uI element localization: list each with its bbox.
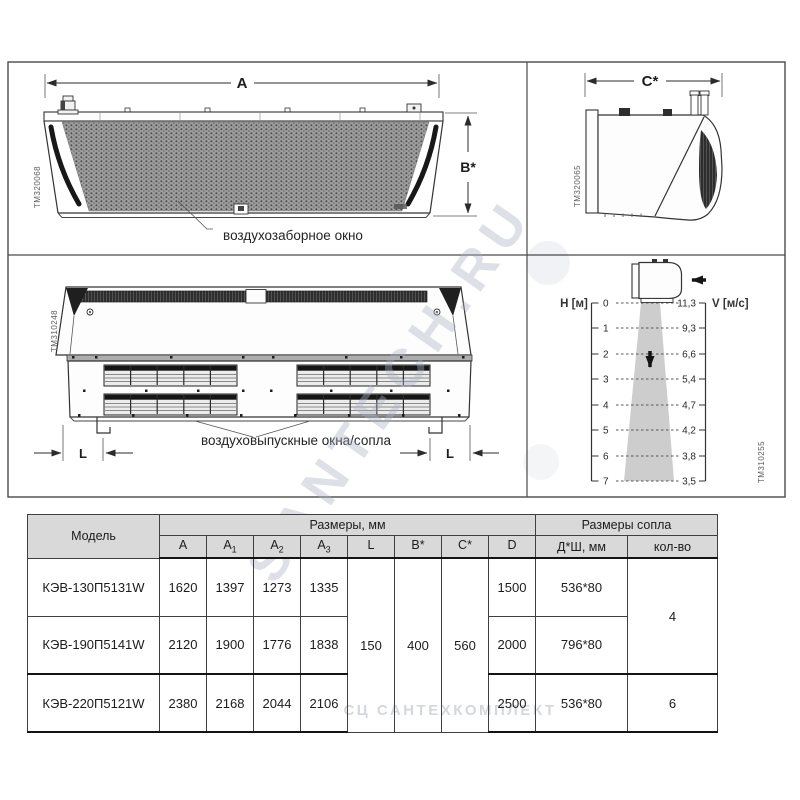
v-tick: 9,3 [682, 324, 696, 335]
dimension-a: A [45, 74, 439, 98]
drawing-code: TM320065 [573, 165, 582, 207]
dimension-l-left: L [34, 425, 133, 461]
intake-mesh [62, 122, 429, 211]
h-tick: 5 [603, 426, 609, 437]
model-cell: КЭВ-130П5131W [28, 558, 160, 616]
dim-a-cell: 2120 [160, 616, 207, 674]
nozzle-size-cell: 796*80 [536, 616, 628, 674]
col-header-nozzle-qty: кол-во [628, 536, 718, 559]
v-tick: 11,3 [677, 299, 696, 310]
model-cell: КЭВ-190П5141W [28, 616, 160, 674]
col-header-c: C* [442, 536, 489, 559]
velocity-axis: V [м/с] 11,3 9,3 6,6 5,4 4,7 4,2 3,8 3,5 [677, 298, 749, 488]
technical-drawing: A [0, 0, 800, 510]
v-tick: 4,7 [682, 401, 696, 412]
intake-callout-label: воздухозаборное окно [223, 228, 363, 243]
dim-l-left-label: L [79, 446, 87, 461]
h-tick: 0 [603, 299, 609, 310]
nozzle-group-header: Размеры сопла [536, 515, 718, 536]
drawing-code: TM310248 [50, 310, 59, 352]
mount-hook [97, 417, 110, 433]
dim-a-cell: 1620 [160, 558, 207, 616]
col-header-a2: A2 [254, 536, 301, 559]
h-tick: 1 [603, 324, 609, 335]
pipe-connection [701, 95, 708, 115]
v-tick: 6,6 [682, 350, 696, 361]
dimension-b: B* [433, 113, 477, 216]
outlet-grille [297, 365, 430, 386]
sensor-fitting [407, 104, 421, 112]
airflow-cone [624, 303, 674, 481]
col-header-a3: A3 [301, 536, 348, 559]
outlet-grille [104, 365, 237, 386]
bottom-view-panel: L L воздуховыпускные окна/сопла TM310248 [34, 287, 499, 461]
unit-pictogram [632, 259, 682, 303]
dim-a2-cell: 1776 [254, 616, 301, 674]
dim-d-cell: 2500 [489, 674, 536, 732]
air-curtain-spec-sheet: A [0, 0, 800, 800]
dim-a2-cell: 1273 [254, 558, 301, 616]
v-tick: 5,4 [682, 375, 696, 386]
dim-a-cell: 2380 [160, 674, 207, 732]
height-axis-label: H [м] [560, 298, 588, 310]
table-row: КЭВ-130П5131W 1620 1397 1273 1335 150 40… [28, 558, 718, 616]
airflow-panel: H [м] 0 1 2 3 4 5 6 7 V [м/с] [560, 259, 766, 488]
dimension-l-right: L [400, 425, 499, 461]
drawing-code: TM310255 [757, 441, 766, 483]
drawing-code: TM320068 [33, 166, 42, 208]
col-header-a: A [160, 536, 207, 559]
outlet-callout-label: воздуховыпускные окна/сопла [201, 433, 392, 448]
pipe-connection [691, 95, 698, 115]
model-cell: КЭВ-220П5121W [28, 674, 160, 732]
h-tick: 2 [603, 350, 609, 361]
dim-a1-cell: 1397 [207, 558, 254, 616]
nozzle-size-cell: 536*80 [536, 674, 628, 732]
mount-hook [429, 417, 442, 433]
dim-a2-cell: 2044 [254, 674, 301, 732]
col-header-nozzle-size: Д*Ш, мм [536, 536, 628, 559]
nozzle-size-cell: 536*80 [536, 558, 628, 616]
v-tick: 3,8 [682, 452, 696, 463]
dim-a1-cell: 1900 [207, 616, 254, 674]
dim-l-cell: 150 [348, 558, 395, 732]
velocity-axis-label: V [м/с] [712, 298, 749, 310]
col-header-a1: A1 [207, 536, 254, 559]
height-axis: H [м] 0 1 2 3 4 5 6 7 [560, 298, 609, 488]
front-view-panel: A [33, 74, 477, 243]
dim-d-cell: 2000 [489, 616, 536, 674]
watermark-circle [523, 444, 559, 480]
bottom-view-unit [56, 287, 472, 433]
col-header-l: L [348, 536, 395, 559]
dim-a-label: A [237, 75, 248, 92]
dim-l-right-label: L [446, 446, 454, 461]
h-tick: 6 [603, 452, 609, 463]
dims-group-header: Размеры, мм [160, 515, 536, 536]
nozzle-qty-cell: 6 [628, 674, 718, 732]
dim-d-cell: 1500 [489, 558, 536, 616]
col-header-d: D [489, 536, 536, 559]
dim-b-cell: 400 [395, 558, 442, 732]
outlet-grille [297, 394, 430, 415]
dim-a3-cell: 2106 [301, 674, 348, 732]
dim-a3-cell: 1838 [301, 616, 348, 674]
watermark-circle [526, 241, 570, 285]
side-view-panel: C* TM320065 [573, 73, 722, 220]
spec-table: Модель Размеры, мм Размеры сопла A A1 A2… [27, 514, 718, 733]
outlet-callout: воздуховыпускные окна/сопла [195, 421, 392, 448]
dim-b-label: B* [460, 159, 476, 175]
outlet-grille [104, 394, 237, 415]
valve-fitting [58, 96, 78, 114]
dim-a1-cell: 2168 [207, 674, 254, 732]
v-tick: 3,5 [682, 477, 696, 488]
side-view-unit [586, 91, 722, 220]
front-view-unit [44, 96, 443, 218]
model-column-header: Модель [28, 515, 160, 559]
dim-c-cell: 560 [442, 558, 489, 732]
v-tick: 4,2 [682, 426, 696, 437]
dim-c-label: C* [642, 73, 659, 90]
col-header-b: B* [395, 536, 442, 559]
dim-a3-cell: 1335 [301, 558, 348, 616]
h-tick: 4 [603, 401, 609, 412]
h-tick: 7 [603, 477, 609, 488]
nozzle-qty-cell: 4 [628, 558, 718, 674]
h-tick: 3 [603, 375, 609, 386]
